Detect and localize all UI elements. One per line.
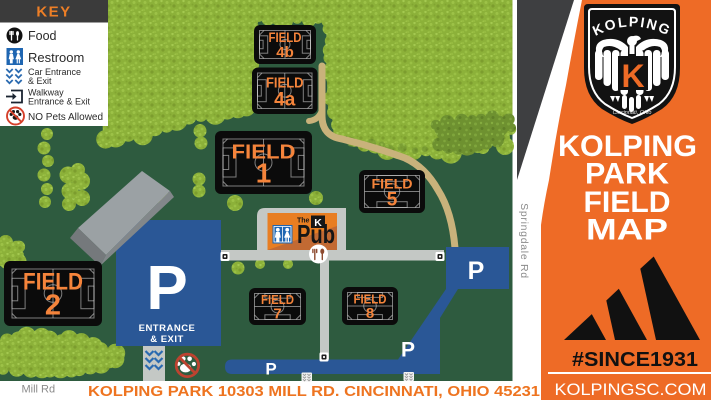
svg-text:8: 8 (366, 305, 374, 322)
svg-text:#SINCE1931: #SINCE1931 (572, 349, 698, 371)
svg-text:KOLPING PARK 10303 MILL RD. CI: KOLPING PARK 10303 MILL RD. CINCINNATI, … (88, 384, 540, 400)
svg-text:Cincinnati, Ohio: Cincinnati, Ohio (613, 110, 652, 116)
svg-text:P: P (146, 254, 187, 323)
svg-text:4a: 4a (274, 90, 296, 111)
svg-text:NO Pets Allowed: NO Pets Allowed (28, 112, 103, 123)
svg-text:& EXIT: & EXIT (150, 334, 184, 345)
svg-text:7: 7 (273, 305, 281, 322)
svg-text:KEY: KEY (36, 4, 71, 21)
svg-text:Entrance & Exit: Entrance & Exit (28, 97, 91, 107)
svg-text:MAP: MAP (586, 214, 668, 247)
svg-text:1: 1 (256, 158, 272, 189)
svg-text:KOLPINGSC.COM: KOLPINGSC.COM (555, 381, 707, 399)
svg-text:& Exit: & Exit (28, 76, 52, 86)
svg-text:P: P (468, 257, 485, 285)
svg-text:Food: Food (28, 29, 57, 43)
svg-text:4b: 4b (276, 44, 294, 61)
svg-text:Pub: Pub (297, 219, 335, 249)
svg-text:K: K (621, 58, 644, 94)
svg-text:Springdale Rd: Springdale Rd (518, 203, 530, 279)
svg-text:5: 5 (387, 189, 398, 210)
svg-text:P: P (401, 339, 415, 362)
svg-text:ENTRANCE: ENTRANCE (139, 323, 196, 334)
svg-text:Restroom: Restroom (28, 50, 84, 65)
svg-text:2: 2 (45, 289, 61, 321)
svg-text:Mill Rd: Mill Rd (22, 384, 56, 396)
svg-text:P: P (265, 360, 276, 379)
svg-text:FIELD: FIELD (269, 30, 302, 45)
